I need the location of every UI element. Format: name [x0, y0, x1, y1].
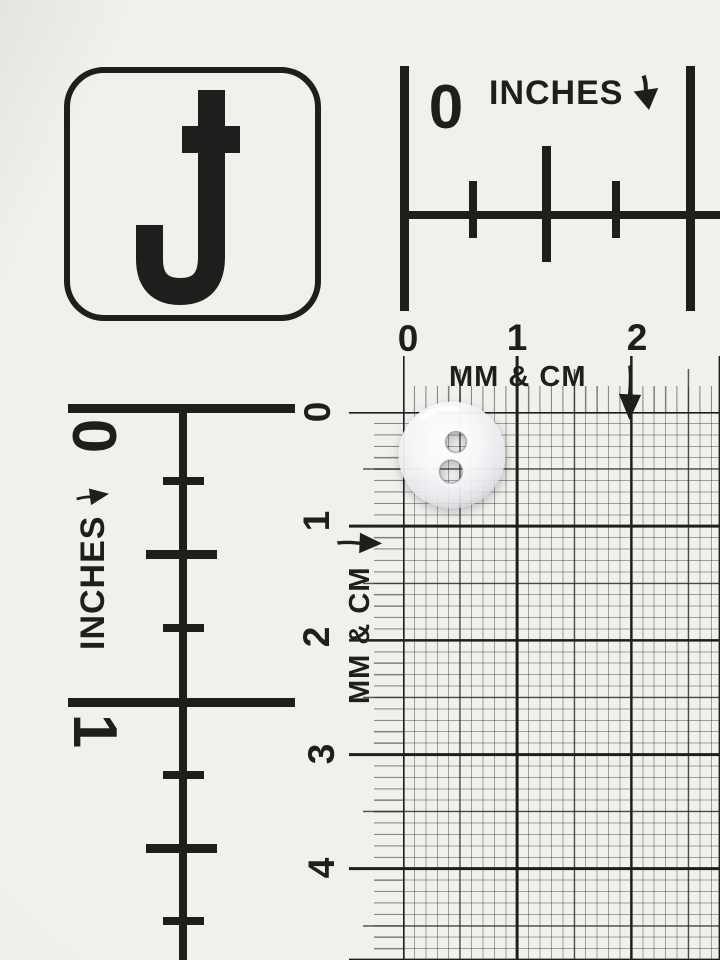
arrow-down-icon [337, 531, 383, 555]
left-inches-title: INCHES [76, 486, 110, 650]
inch-tick-1-quarter [163, 771, 204, 779]
top-inches-title: INCHES [489, 74, 661, 113]
inch-tick-quarter [163, 477, 204, 485]
arrow-down-icon [630, 73, 665, 113]
inches-label: INCHES [489, 74, 623, 113]
button-hole-bottom [440, 460, 463, 483]
inch-baseline [400, 211, 720, 219]
left-inch-one-label: 1 [64, 701, 124, 761]
two-hole-button [395, 398, 510, 512]
inch-tick-threequarter [163, 624, 204, 632]
inch-tick-half [146, 550, 217, 559]
measurement-card-photo: 0 INCHES 0 1 INCHES [0, 0, 720, 960]
inch-tick-1-threequarter [163, 917, 204, 925]
inch-tick-1 [686, 66, 695, 311]
inch-tick-quarter [469, 181, 477, 238]
logo-box [64, 67, 321, 321]
grid-left-number-0: 0 [298, 392, 338, 432]
inches-label: INCHES [74, 516, 113, 650]
inch-baseline [179, 404, 187, 960]
button-face [399, 402, 506, 509]
grid-left-title: MM & CM [343, 504, 377, 704]
arrow-down-icon [75, 483, 112, 508]
inch-tick-0 [400, 66, 409, 311]
grid-top-number-2: 2 [617, 318, 657, 358]
top-inch-zero-label: 0 [416, 78, 476, 138]
inch-tick-1-half [146, 844, 217, 853]
grid-left-number-4: 4 [302, 848, 342, 888]
grid-left-number-2: 2 [297, 617, 337, 657]
mm-cm-label: MM & CM [344, 567, 377, 704]
grid-top-number-0: 0 [388, 319, 428, 359]
mm-cm-label: MM & CM [449, 361, 586, 393]
button-hole-top [446, 432, 467, 453]
grid-top-number-1: 1 [497, 318, 537, 358]
grid-top-title: MM & CM [449, 361, 586, 394]
grid-left-number-1: 1 [297, 501, 337, 541]
logo-j-icon [70, 73, 315, 315]
grid-left-number-3: 3 [302, 734, 342, 774]
inch-tick-half [542, 146, 551, 262]
inch-tick-threequarter [612, 181, 620, 238]
arrow-down-icon [617, 365, 643, 421]
left-inch-zero-label: 0 [63, 406, 123, 466]
